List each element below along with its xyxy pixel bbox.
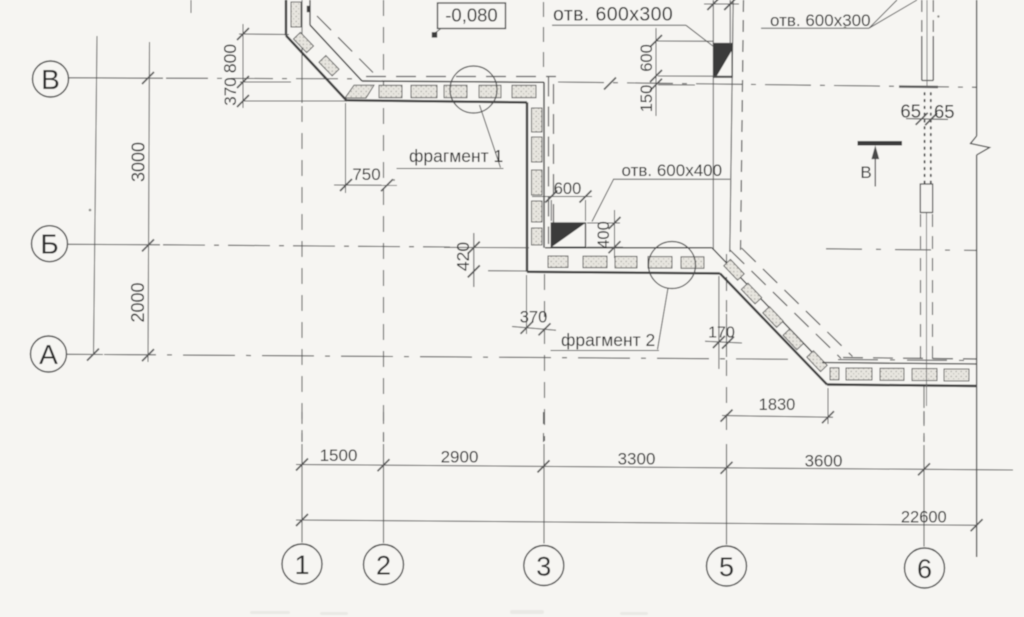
svg-text:А: А	[39, 339, 58, 370]
svg-text:750: 750	[352, 165, 380, 184]
svg-text:2000: 2000	[128, 282, 148, 322]
svg-text:65: 65	[900, 101, 921, 122]
svg-text:отв. 600х300: отв. 600х300	[553, 4, 673, 26]
svg-text:3: 3	[536, 552, 551, 582]
svg-text:фрагмент 1: фрагмент 1	[409, 146, 503, 166]
svg-text:5: 5	[719, 552, 734, 582]
svg-text:22600: 22600	[901, 509, 947, 527]
svg-text:370: 370	[520, 309, 548, 327]
svg-text:420: 420	[453, 242, 473, 271]
svg-text:1: 1	[294, 550, 309, 580]
svg-text:370: 370	[221, 77, 240, 105]
svg-text:6: 6	[917, 554, 932, 584]
svg-text:отв. 600х400: отв. 600х400	[622, 161, 723, 180]
svg-text:-0,080: -0,080	[445, 5, 497, 26]
svg-text:В: В	[41, 64, 60, 95]
svg-text:2900: 2900	[441, 448, 479, 467]
svg-text:3300: 3300	[618, 450, 656, 469]
svg-text:отв. 600х300: отв. 600х300	[770, 11, 871, 30]
svg-text:400: 400	[595, 221, 613, 249]
svg-text:3600: 3600	[805, 452, 843, 471]
svg-text:Б: Б	[40, 229, 58, 260]
svg-text:600: 600	[638, 44, 656, 72]
svg-text:600: 600	[554, 180, 582, 198]
svg-text:170: 170	[708, 325, 735, 342]
svg-text:В: В	[860, 163, 871, 182]
svg-text:3000: 3000	[129, 142, 149, 182]
svg-text:150: 150	[638, 85, 656, 113]
svg-text:800: 800	[220, 44, 240, 73]
svg-text:65: 65	[934, 101, 955, 122]
svg-text:фрагмент 2: фрагмент 2	[561, 330, 655, 350]
svg-text:2: 2	[376, 551, 391, 581]
svg-text:1830: 1830	[759, 396, 796, 414]
svg-text:1500: 1500	[320, 446, 358, 465]
